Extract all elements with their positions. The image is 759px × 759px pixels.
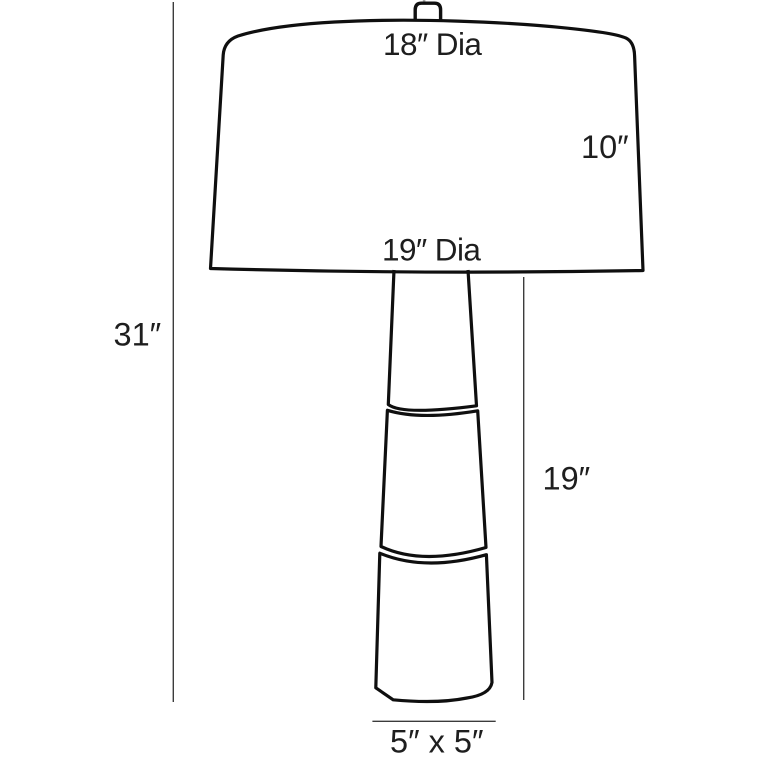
svg-text:31″: 31″ [114,317,162,353]
svg-text:5″ x 5″: 5″ x 5″ [390,724,483,759]
svg-text:19″ Dia: 19″ Dia [382,232,481,268]
svg-text:18″ Dia: 18″ Dia [383,26,482,62]
svg-text:10″: 10″ [581,129,629,165]
svg-text:19″: 19″ [543,461,591,497]
